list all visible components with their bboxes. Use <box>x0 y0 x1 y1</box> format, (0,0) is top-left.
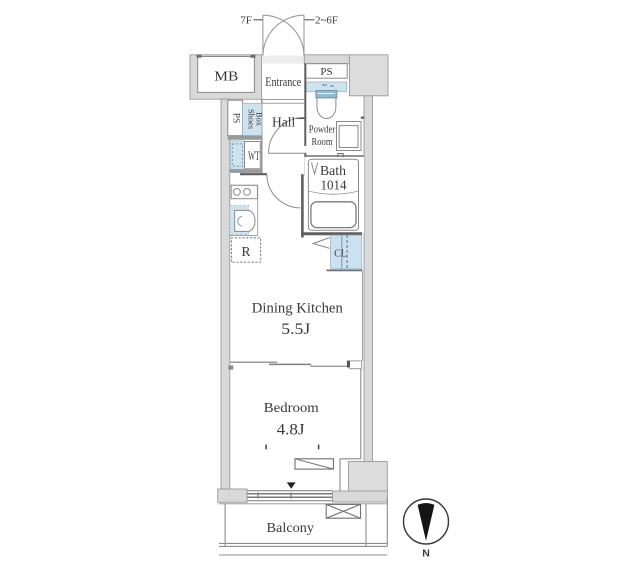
svg-text:Balcony: Balcony <box>267 521 315 536</box>
svg-text:Bedroom: Bedroom <box>264 401 319 416</box>
svg-text:5.5J: 5.5J <box>281 321 310 338</box>
svg-text:Powder: Powder <box>309 124 336 135</box>
svg-text:WT: WT <box>248 149 260 163</box>
svg-text:4.8J: 4.8J <box>277 422 305 439</box>
svg-text:Entrance: Entrance <box>265 75 301 89</box>
svg-text:Room: Room <box>312 137 333 148</box>
svg-text:PS: PS <box>231 113 241 124</box>
svg-text:N: N <box>422 548 430 560</box>
svg-text:1014: 1014 <box>321 178 347 193</box>
svg-text:Bath: Bath <box>320 163 346 178</box>
svg-text:Dining Kitchen: Dining Kitchen <box>252 300 344 316</box>
svg-text:PS: PS <box>320 66 332 78</box>
svg-text:2~6F: 2~6F <box>315 15 338 27</box>
svg-text:Shoes: Shoes <box>247 109 256 129</box>
svg-text:7F: 7F <box>240 15 252 27</box>
svg-text:CL: CL <box>334 248 347 259</box>
svg-text:Box: Box <box>255 112 264 127</box>
svg-text:Hall: Hall <box>272 115 295 130</box>
svg-text:R: R <box>241 244 250 259</box>
svg-text:MB: MB <box>214 70 238 85</box>
